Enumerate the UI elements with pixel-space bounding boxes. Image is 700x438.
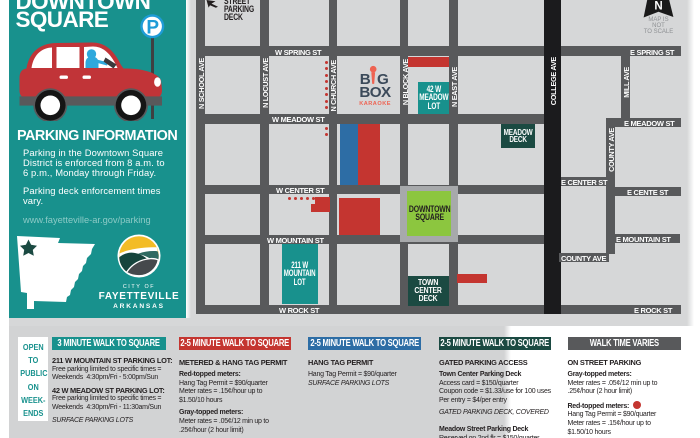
svg-text:KARAOKE: KARAOKE bbox=[359, 101, 391, 107]
svg-text:N: N bbox=[654, 0, 662, 12]
svg-text:P: P bbox=[146, 17, 159, 38]
svg-text:BOX: BOX bbox=[359, 84, 391, 101]
